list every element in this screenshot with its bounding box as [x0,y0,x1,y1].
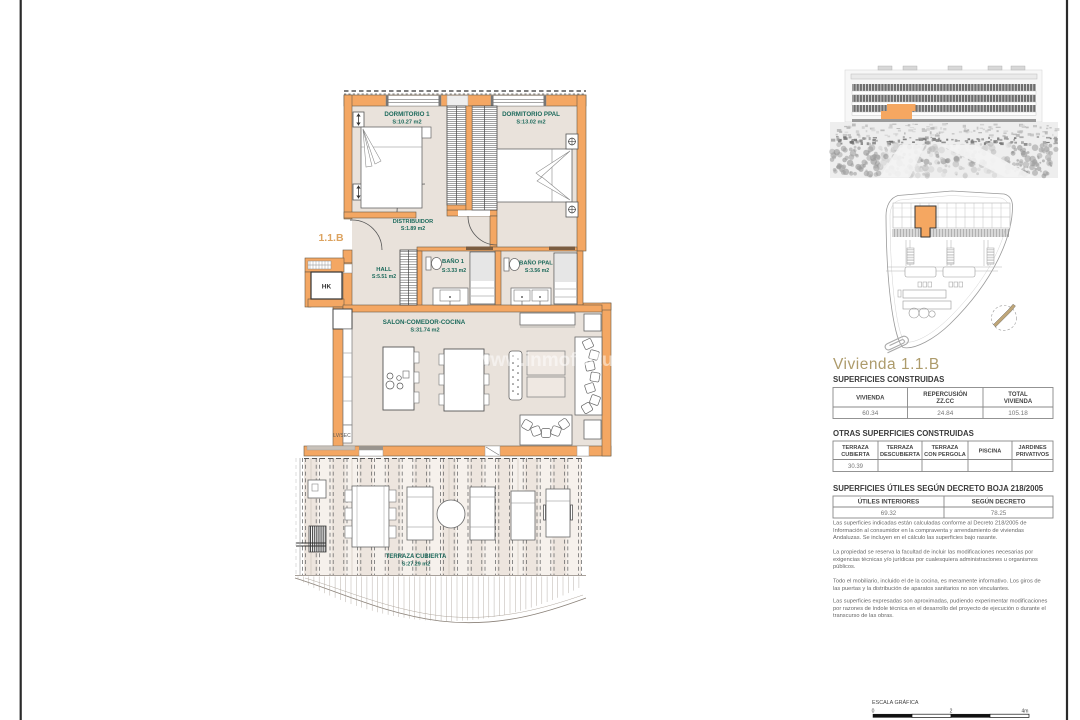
svg-text:SALON-COMEDOR-COCINA: SALON-COMEDOR-COCINA [383,319,466,326]
svg-text:Las superficies indicadas está: Las superficies indicadas están calculad… [833,521,1027,527]
svg-text:SUPERFICIES CONSTRUIDAS: SUPERFICIES CONSTRUIDAS [833,375,944,384]
svg-text:las puertas y la distribución: las puertas y la distribución de aparato… [833,586,1010,592]
svg-text:exigencias técnicas y/o jurídi: exigencias técnicas y/o jurídicas por cu… [833,557,1038,563]
svg-text:S:27.29 m2: S:27.29 m2 [402,562,430,568]
svg-text:OTRAS SUPERFICIES CONSTRUIDAS: OTRAS SUPERFICIES CONSTRUIDAS [833,429,974,438]
svg-text:2: 2 [950,708,953,714]
svg-text:78.25: 78.25 [991,510,1007,517]
svg-text:24.84: 24.84 [937,410,953,417]
svg-text:0: 0 [872,708,875,714]
svg-text:DISTRIBUIDOR: DISTRIBUIDOR [393,219,433,225]
svg-text:Información al consumidor en l: Información al consumidor en la comprave… [833,528,1024,534]
svg-text:CON PERGOLA: CON PERGOLA [924,452,966,458]
svg-text:REPERCUSIÓN: REPERCUSIÓN [923,390,967,398]
svg-text:1.1.B: 1.1.B [318,232,344,244]
svg-text:S:5.51 m2: S:5.51 m2 [372,274,396,280]
svg-text:ÚTILES INTERIORES: ÚTILES INTERIORES [858,499,920,506]
svg-text:S:3.33 m2: S:3.33 m2 [442,268,466,274]
svg-text:VIVIENDA: VIVIENDA [856,395,885,401]
svg-text:TERRAZA: TERRAZA [842,445,869,451]
svg-text:60.34: 60.34 [862,410,878,417]
svg-text:LV/SEC: LV/SEC [333,433,351,439]
svg-text:Las superficies expresadas son: Las superficies expresadas son aproximad… [833,599,1048,605]
svg-text:4m: 4m [1022,708,1029,714]
svg-text:Vivienda 1.1.B: Vivienda 1.1.B [833,356,940,373]
svg-text:CUBIERTA: CUBIERTA [841,452,870,458]
svg-text:S:31.74 m2: S:31.74 m2 [410,328,439,334]
svg-text:transcurso de las obras.: transcurso de las obras. [833,613,894,619]
svg-text:Todo el mobiliario, incluido e: Todo el mobiliario, incluido el de la co… [833,579,1041,585]
svg-text:ESCALA GRÁFICA: ESCALA GRÁFICA [872,699,919,706]
svg-text:DORMITORIO PPAL: DORMITORIO PPAL [502,111,560,118]
svg-text:TOTAL: TOTAL [1008,392,1028,398]
svg-text:TERRAZA: TERRAZA [887,445,914,451]
svg-text:S:1.89 m2: S:1.89 m2 [401,226,425,232]
svg-text:BAÑO 1: BAÑO 1 [442,258,465,265]
svg-text:HK: HK [322,284,332,291]
svg-text:105.18: 105.18 [1008,410,1028,417]
svg-text:69.32: 69.32 [881,510,897,517]
svg-text:ZZ.CC: ZZ.CC [936,399,954,405]
svg-text:S:10.27 m2: S:10.27 m2 [392,120,421,126]
svg-text:S:13.02 m2: S:13.02 m2 [516,120,545,126]
svg-text:DESCUBIERTA: DESCUBIERTA [880,452,920,458]
svg-text:HALL: HALL [376,267,392,273]
svg-text:30.39: 30.39 [848,464,864,470]
svg-text:VIVIENDA: VIVIENDA [1004,399,1033,405]
svg-text:www.inmofortuna.com: www.inmofortuna.com [475,350,680,371]
svg-text:por razones de índole técnica: por razones de índole técnica en el desa… [833,606,1046,612]
svg-text:TERRAZA CUBIERTA: TERRAZA CUBIERTA [386,554,447,560]
svg-text:JARDINES: JARDINES [1018,445,1047,451]
svg-text:Andaluzas. Se incluyen en el c: Andaluzas. Se incluyen en el cálculo las… [833,535,998,541]
svg-text:PISCINA: PISCINA [979,448,1002,454]
svg-text:DORMITORIO 1: DORMITORIO 1 [384,111,430,118]
svg-text:PRIVATIVOS: PRIVATIVOS [1016,452,1049,458]
svg-text:La propiedad se reserva la fac: La propiedad se reserva la facultad de i… [833,550,1033,556]
svg-text:SUPERFICIES ÚTILES SEGÚN DECRE: SUPERFICIES ÚTILES SEGÚN DECRETO BOJA 21… [833,484,1044,493]
svg-text:BAÑO PPAL: BAÑO PPAL [519,260,553,267]
svg-text:SEGÚN DECRETO: SEGÚN DECRETO [972,499,1026,506]
svg-text:S:3.56 m2: S:3.56 m2 [525,268,549,274]
svg-text:públicos.: públicos. [833,564,856,570]
svg-text:TERRAZA: TERRAZA [932,445,959,451]
